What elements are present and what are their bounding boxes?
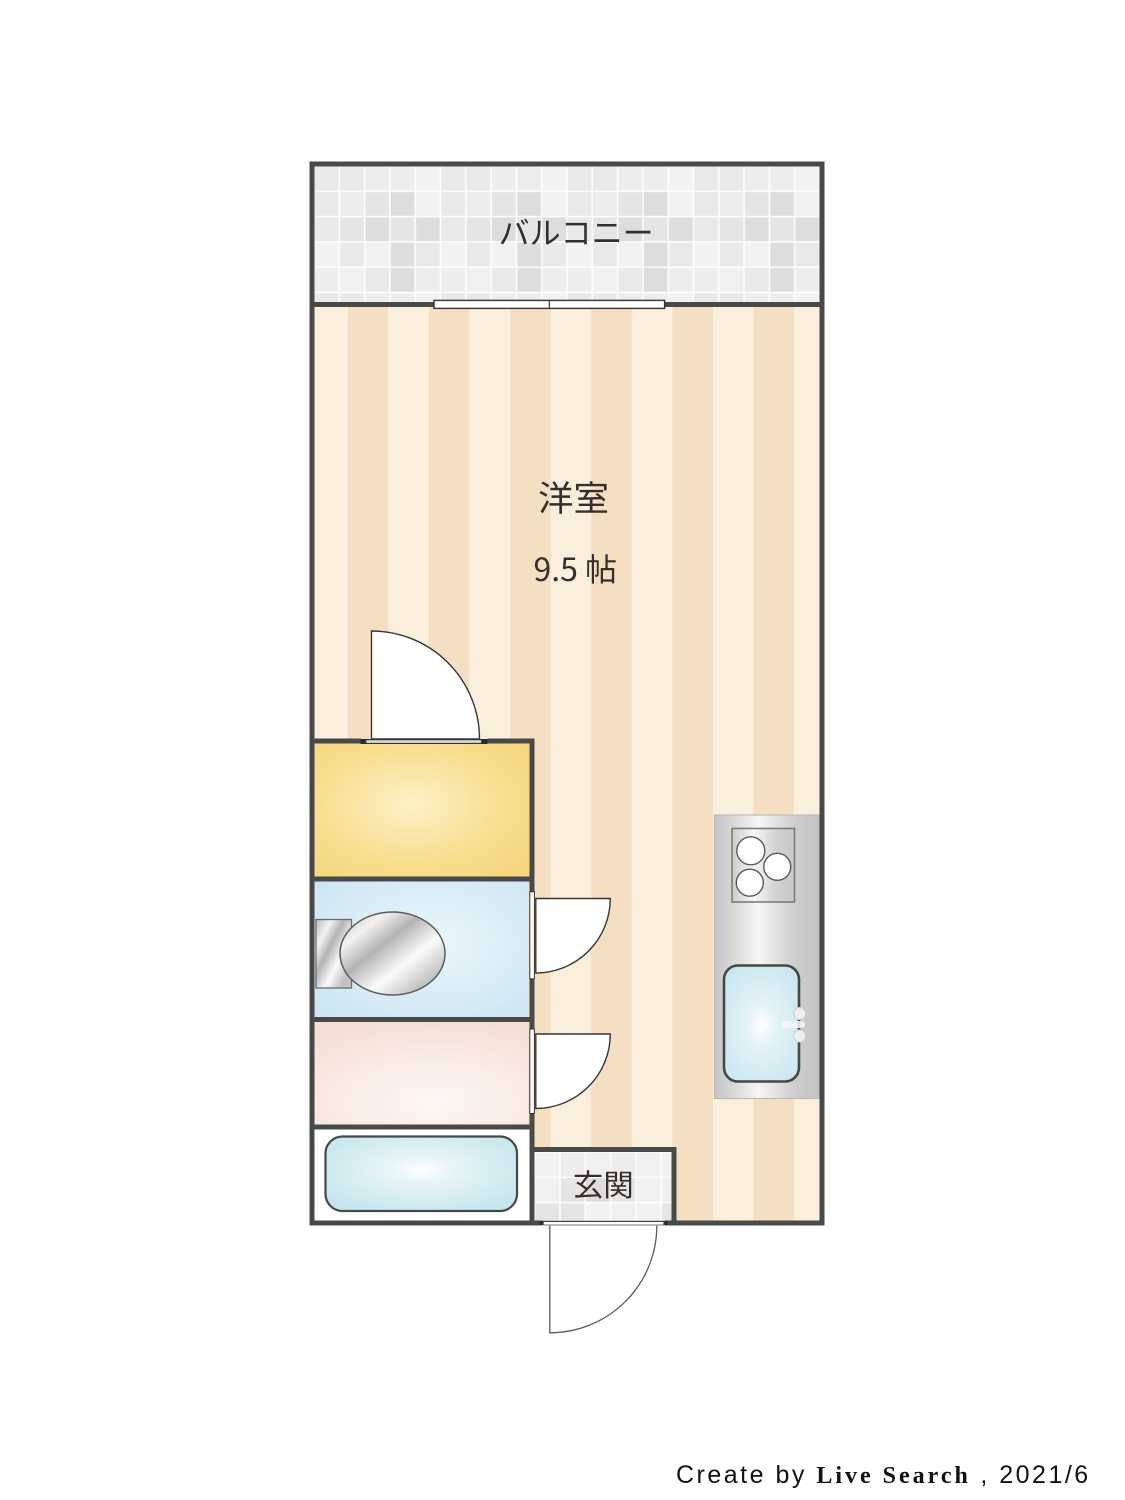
svg-text:Create by Live Search , 2021/6: Create by Live Search , 2021/6 bbox=[676, 1461, 1091, 1489]
